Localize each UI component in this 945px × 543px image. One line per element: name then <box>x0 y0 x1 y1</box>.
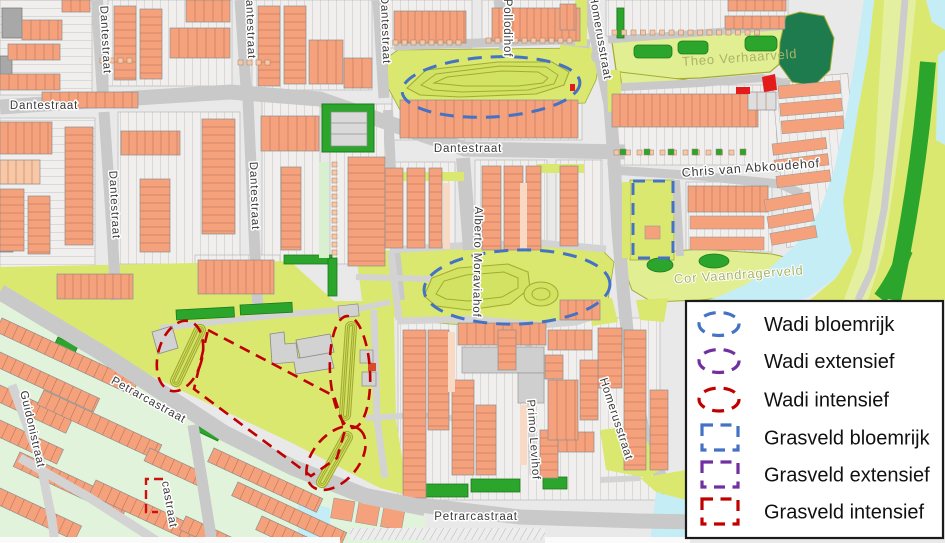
svg-text:Dantestraat: Dantestraat <box>434 143 502 155</box>
svg-text:Grasveld extensief: Grasveld extensief <box>764 465 930 487</box>
svg-text:Grasveld bloemrijk: Grasveld bloemrijk <box>764 428 931 450</box>
svg-text:Dantestraat: Dantestraat <box>378 0 392 64</box>
svg-text:Dantestraat: Dantestraat <box>243 0 257 59</box>
svg-text:Alberto Moraviahof: Alberto Moraviahof <box>470 206 484 317</box>
svg-text:Wadi bloemrijk: Wadi bloemrijk <box>764 314 895 336</box>
svg-text:Grasveld intensief: Grasveld intensief <box>764 502 925 524</box>
svg-text:Pollodihof: Pollodihof <box>501 0 513 57</box>
svg-text:Wadi intensief: Wadi intensief <box>764 390 889 412</box>
svg-text:Wadi extensief: Wadi extensief <box>764 351 895 373</box>
svg-text:Dantestraat: Dantestraat <box>247 162 261 231</box>
svg-text:Dantestraat: Dantestraat <box>10 100 78 112</box>
svg-text:Petrarcastraat: Petrarcastraat <box>434 511 517 523</box>
